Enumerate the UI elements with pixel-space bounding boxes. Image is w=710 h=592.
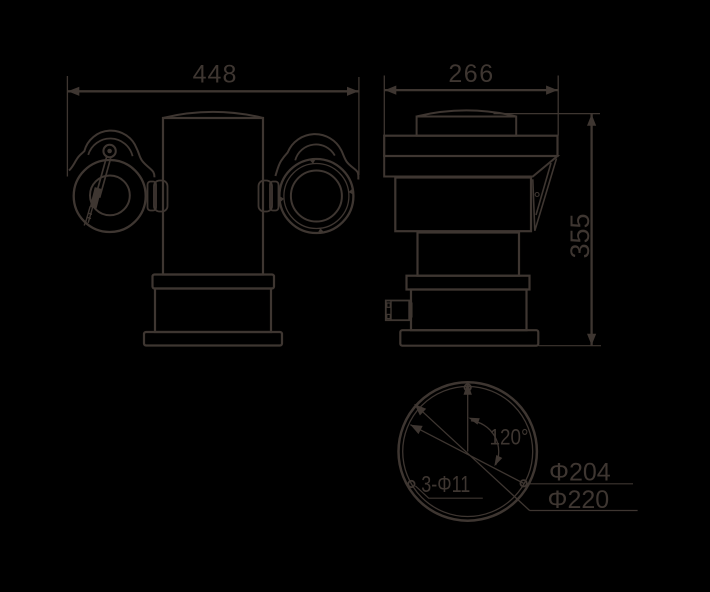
svg-text:3-Φ11: 3-Φ11 (421, 471, 470, 497)
svg-text:Φ220: Φ220 (548, 486, 610, 514)
svg-text:120°: 120° (490, 424, 529, 449)
svg-text:266: 266 (448, 60, 494, 88)
svg-text:355: 355 (565, 213, 595, 258)
svg-text:Φ204: Φ204 (549, 459, 611, 487)
svg-text:448: 448 (193, 60, 238, 88)
